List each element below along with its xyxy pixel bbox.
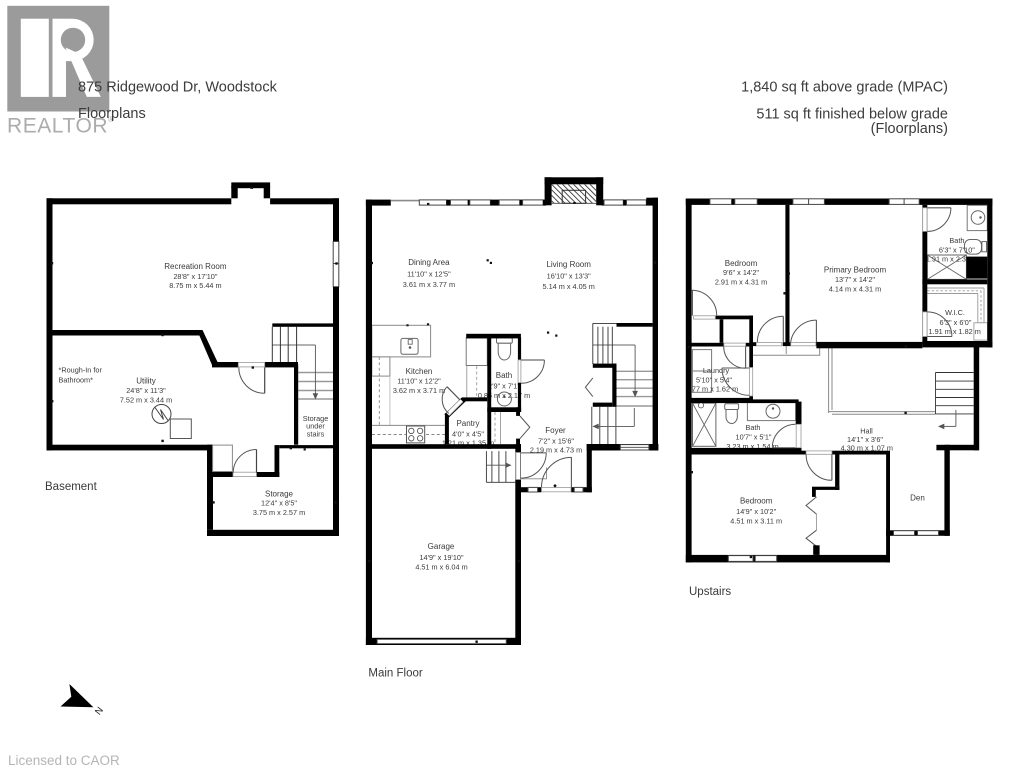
svg-text:13'7" x 14'2": 13'7" x 14'2" [835,275,875,284]
svg-text:Dining Area: Dining Area [408,258,450,267]
svg-text:4.51 m x 3.11 m: 4.51 m x 3.11 m [730,516,782,525]
svg-text:875 Ridgewood Dr, Woodstock: 875 Ridgewood Dr, Woodstock [78,80,278,96]
svg-text:4.14 m x 4.31 m: 4.14 m x 4.31 m [829,285,881,294]
svg-text:14'9" x 19'10": 14'9" x 19'10" [419,553,463,562]
svg-text:14'9" x 10'2": 14'9" x 10'2" [736,507,776,516]
svg-text:Main Floor: Main Floor [368,668,422,680]
svg-text:(Floorplans): (Floorplans) [871,121,948,137]
svg-text:3.61 m x 3.77 m: 3.61 m x 3.77 m [403,280,455,289]
svg-text:Bedroom: Bedroom [725,259,758,268]
svg-text:8.75 m x 5.44 m: 8.75 m x 5.44 m [169,281,221,290]
svg-text:2'9" x 7'1": 2'9" x 7'1" [488,382,520,391]
svg-text:24'8" x 11'3": 24'8" x 11'3" [126,386,166,395]
svg-text:11'10" x 12'2": 11'10" x 12'2" [397,377,441,386]
svg-text:11'10" x 12'5": 11'10" x 12'5" [407,270,451,279]
svg-text:Garage: Garage [428,542,455,551]
svg-text:Kitchen: Kitchen [406,367,433,376]
svg-text:4'0" x 4'5": 4'0" x 4'5" [452,429,484,438]
svg-text:Hall: Hall [860,426,873,435]
svg-text:12'4" x 8'5": 12'4" x 8'5" [261,499,297,508]
svg-text:Bath: Bath [949,236,964,245]
svg-text:Utility: Utility [136,377,156,386]
svg-text:Foyer: Foyer [545,426,566,435]
svg-text:7.52 m x 3.44 m: 7.52 m x 3.44 m [120,395,172,404]
svg-text:5.14 m x 4.05 m: 5.14 m x 4.05 m [543,282,595,291]
svg-text:*Rough-In for: *Rough-In for [59,366,103,375]
svg-text:Recreation Room: Recreation Room [164,262,227,271]
svg-text:Bedroom: Bedroom [740,497,773,506]
svg-text:1,840 sq ft above grade (MPAC): 1,840 sq ft above grade (MPAC) [741,80,948,96]
svg-text:1.77 m x 1.62 m: 1.77 m x 1.62 m [686,385,738,394]
svg-text:3.62 m x 3.71 m: 3.62 m x 3.71 m [393,386,445,395]
svg-text:Basement: Basement [45,481,98,493]
svg-text:Bathroom*: Bathroom* [59,375,94,384]
svg-text:Bath: Bath [496,371,512,380]
svg-text:Storage: Storage [265,489,294,498]
svg-text:Pantry: Pantry [456,419,479,428]
svg-text:16'10" x 13'3": 16'10" x 13'3" [547,272,591,281]
svg-text:Licensed to CAOR: Licensed to CAOR [8,753,120,768]
svg-text:Upstairs: Upstairs [689,586,731,598]
svg-text:7'2" x 15'6": 7'2" x 15'6" [538,436,574,445]
svg-text:3.75 m x 2.57 m: 3.75 m x 2.57 m [253,508,305,517]
svg-text:Den: Den [910,494,925,503]
svg-text:28'8" x 17'10": 28'8" x 17'10" [173,272,217,281]
svg-text:Primary Bedroom: Primary Bedroom [824,266,887,275]
svg-text:6'3" x 7'10": 6'3" x 7'10" [939,245,975,254]
svg-text:stairs: stairs [307,429,325,438]
svg-text:W.I.C.: W.I.C. [945,308,965,317]
svg-text:Bath: Bath [745,423,760,432]
svg-text:Floorplans: Floorplans [78,106,146,122]
svg-text:9'6" x 14'2": 9'6" x 14'2" [723,268,759,277]
svg-text:Laundry: Laundry [703,366,730,375]
svg-text:Living Room: Living Room [546,260,591,269]
svg-text:1.91 m x 1.82 m: 1.91 m x 1.82 m [929,327,981,336]
svg-text:2.91 m x 4.31 m: 2.91 m x 4.31 m [715,277,767,286]
svg-text:4.51 m x 6.04 m: 4.51 m x 6.04 m [415,562,467,571]
svg-text:10'7" x 5'1": 10'7" x 5'1" [736,433,772,442]
